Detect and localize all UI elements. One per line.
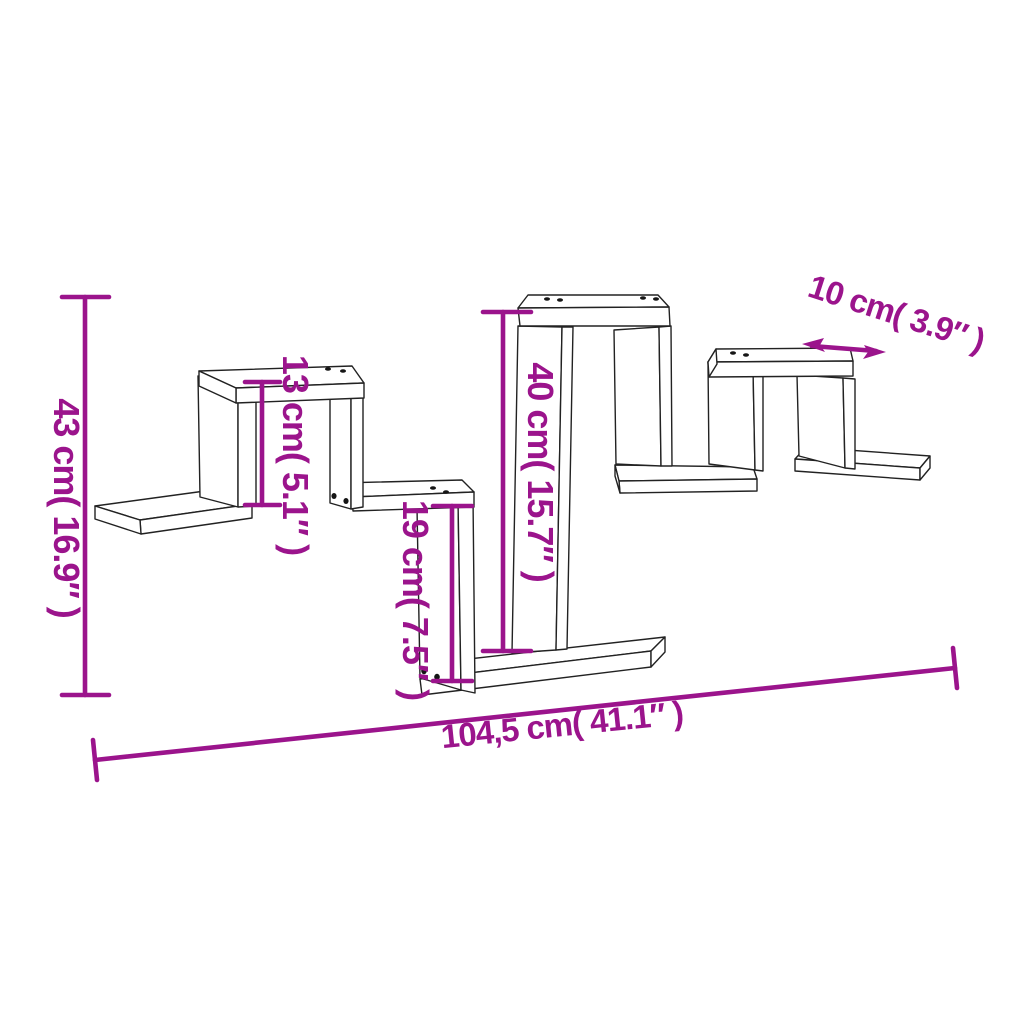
- right-box-right-leg: [797, 375, 855, 469]
- wall-shelf-diagram-svg: 43 cm( 16.9″ ) 13 cm( 5.1″ ) 40 cm( 15.7…: [0, 0, 1024, 1024]
- right-box-top-board: [708, 348, 853, 377]
- depth-label: 10 cm( 3.9″ ): [804, 267, 989, 359]
- dimension-overall-height: 43 cm( 16.9″ ): [46, 297, 109, 695]
- right-box-left-leg: [708, 362, 763, 471]
- shelf-drawing: [95, 295, 930, 695]
- cube-height-label: 13 cm( 5.1″ ): [275, 355, 316, 555]
- dimension-depth: 10 cm( 3.9″ ): [802, 267, 989, 359]
- tall-box-right-leg: [614, 326, 672, 466]
- product-dimension-diagram: 43 cm( 16.9″ ) 13 cm( 5.1″ ) 40 cm( 15.7…: [0, 0, 1024, 1024]
- cube-right-leg: [330, 385, 363, 509]
- lower-box-height-label: 19 cm( 7.5″ ): [395, 500, 436, 700]
- overall-height-label: 43 cm( 16.9″ ): [46, 398, 87, 617]
- tall-box-top-board: [518, 295, 670, 326]
- tall-box-height-label: 40 cm( 15.7″ ): [520, 362, 561, 581]
- right-mid-shelf: [615, 465, 757, 493]
- overall-width-label: 104,5 cm( 41.1″ ): [439, 694, 684, 755]
